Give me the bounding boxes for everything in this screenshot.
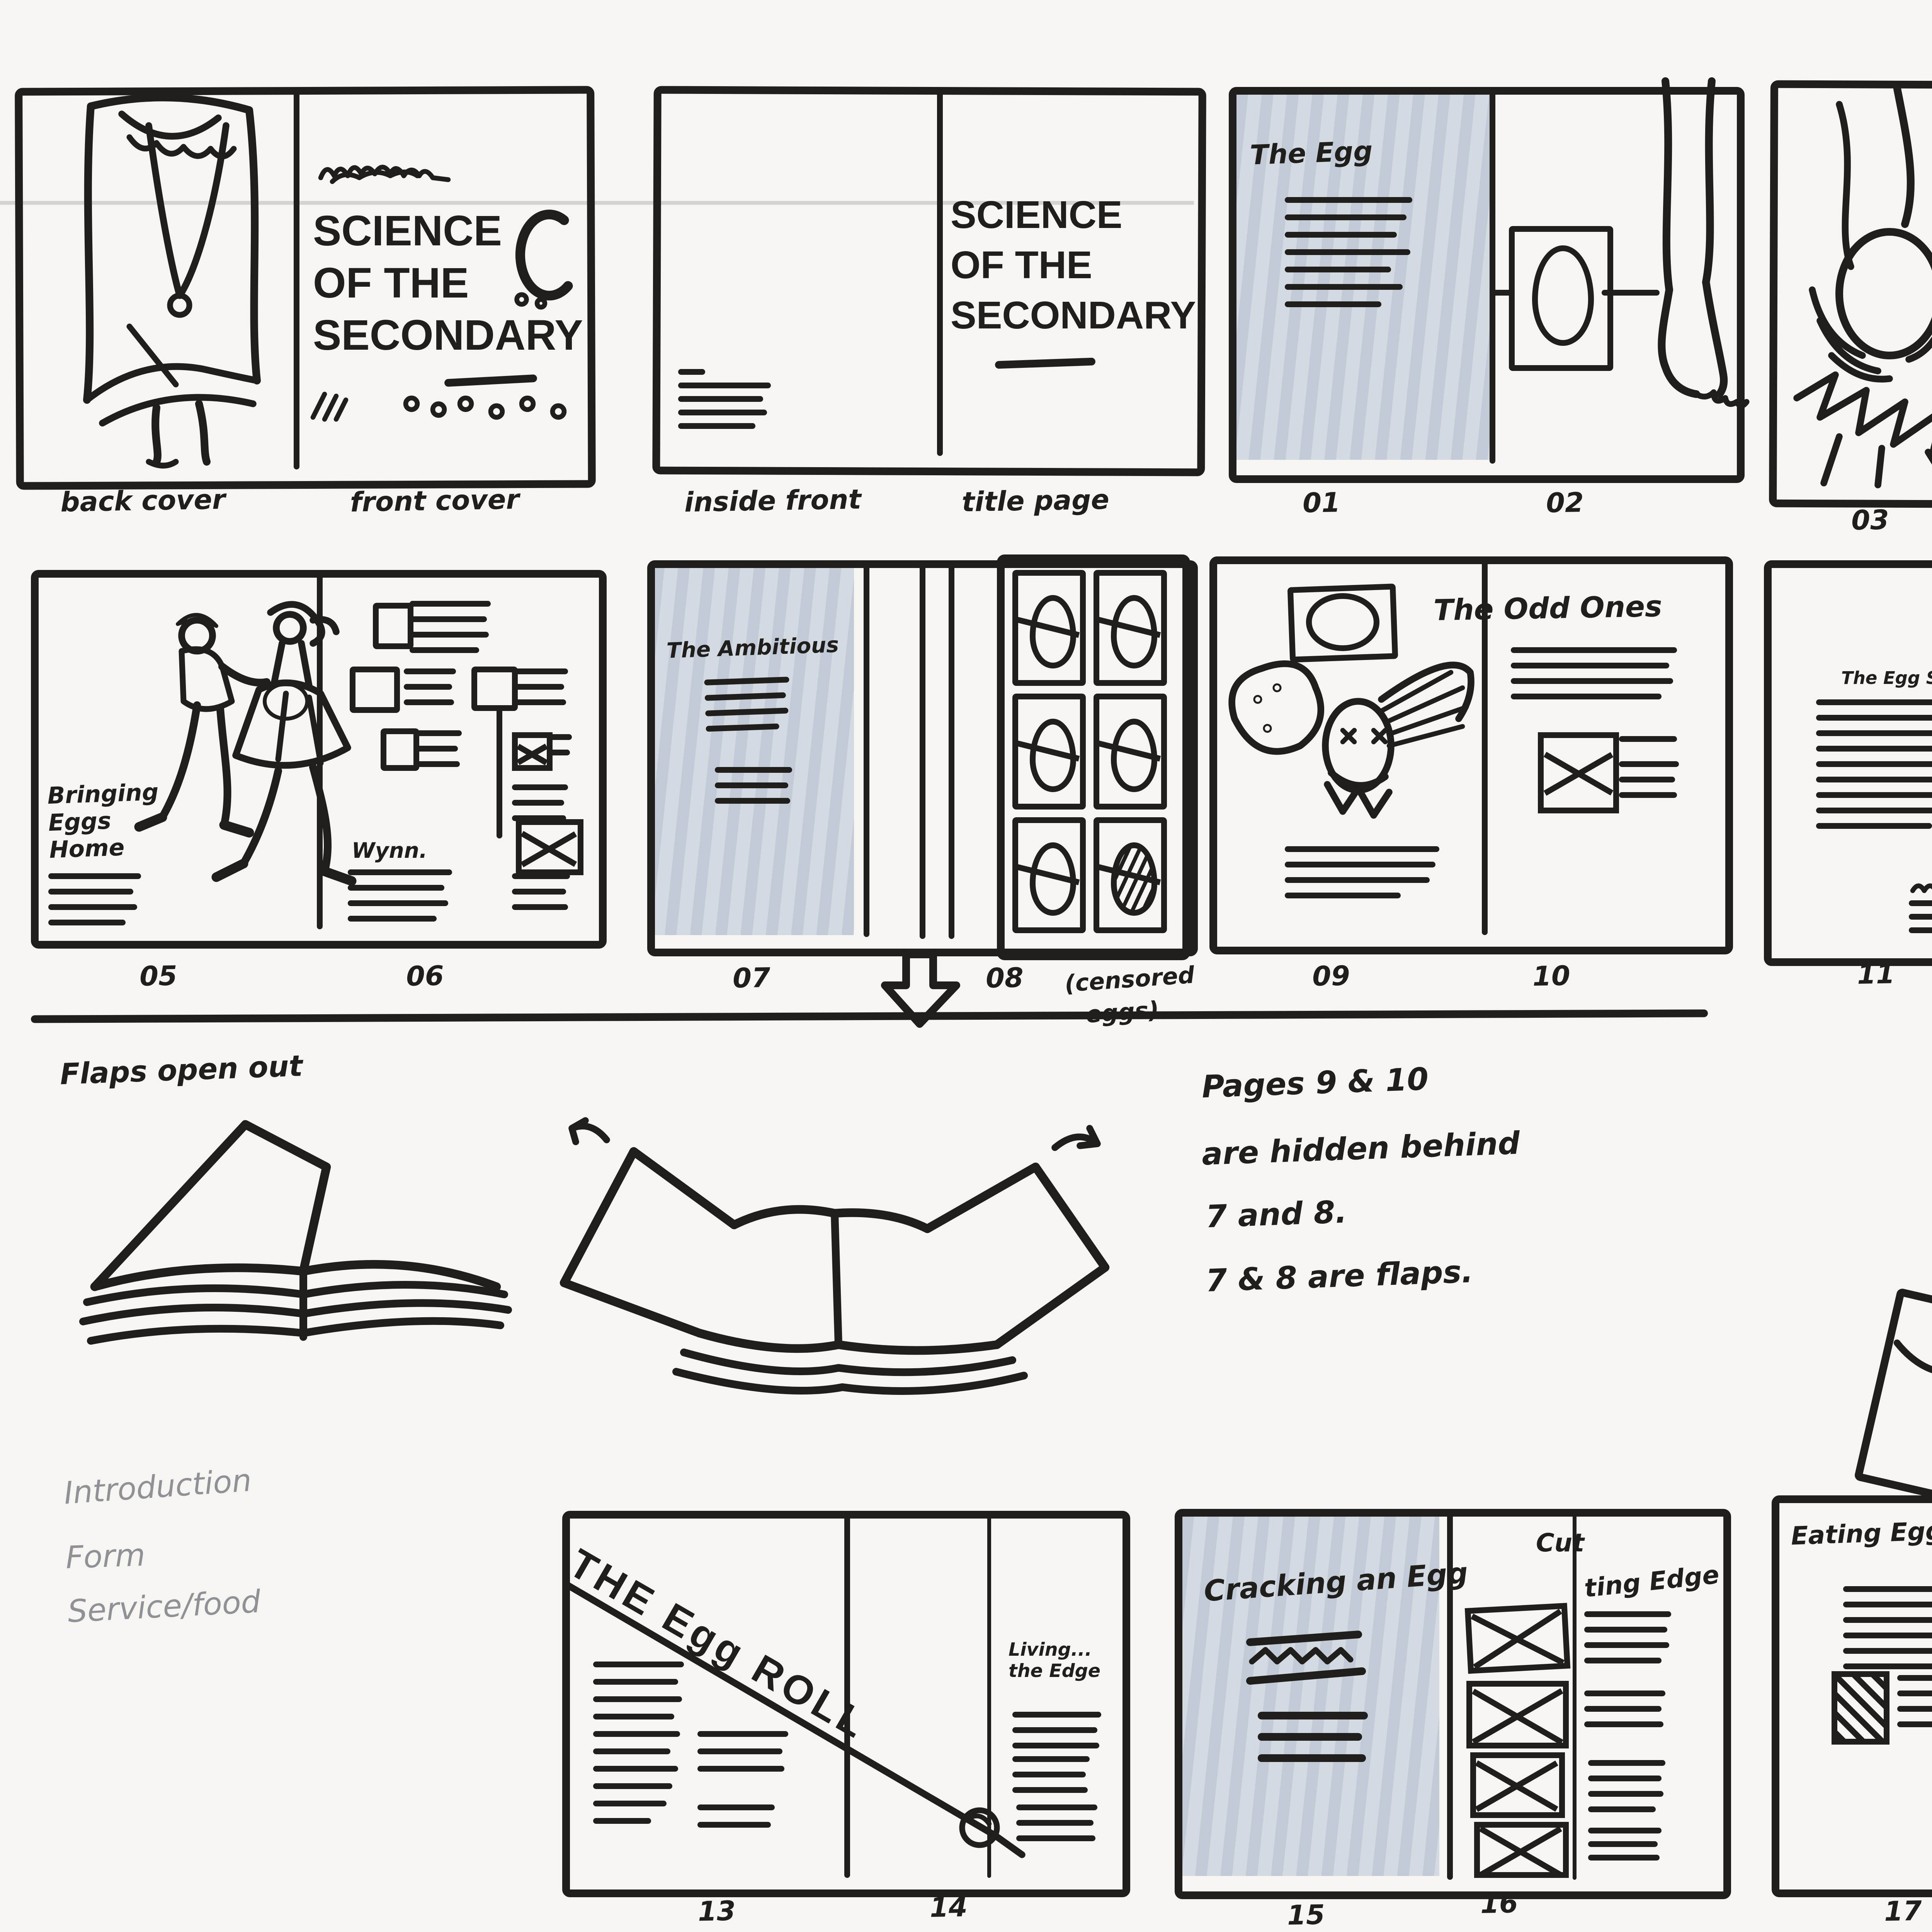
hidden-note-line1: Pages 9 & 10	[1201, 1061, 1429, 1105]
image-placeholder	[512, 732, 553, 771]
flap-07-edge	[864, 564, 869, 937]
hands-cradling-egg-sketch	[1781, 89, 1932, 487]
section-title-the-egg: The Egg	[1250, 137, 1373, 172]
censored-egg-cell-scribbled	[1094, 817, 1167, 933]
squiggle-icon	[1909, 879, 1932, 895]
label-page-02: 02	[1546, 488, 1584, 520]
image-placeholder	[1466, 1681, 1569, 1748]
text-lines-sketch	[1909, 900, 1932, 941]
spread-01-02-divider	[1490, 91, 1495, 464]
text-lines-sketch	[512, 873, 570, 920]
label-page-14: 14	[930, 1893, 968, 1925]
word-wynn: Wynn.	[352, 838, 427, 864]
text-lines-sketch	[678, 369, 771, 437]
dots-scribble-icon	[396, 381, 574, 427]
page16-fold-line	[1573, 1513, 1577, 1880]
label-page-01: 01	[1303, 488, 1341, 520]
text-lines-sketch	[1511, 647, 1677, 709]
text-lines-sketch	[415, 730, 462, 777]
layout-square	[373, 603, 413, 649]
text-lines-sketch	[1584, 1690, 1665, 1737]
image-placeholder	[1470, 1752, 1565, 1818]
text-lines-sketch	[410, 601, 491, 663]
censored-egg-cell	[1094, 570, 1167, 686]
hidden-spine-line-1	[920, 562, 925, 939]
front-cover-title-line3: SECONDARY	[313, 309, 583, 361]
text-lines-sketch	[1012, 1756, 1090, 1803]
image-placeholder	[516, 819, 583, 875]
hidden-note-line4: 7 & 8 are flaps.	[1205, 1253, 1474, 1299]
text-lines-sketch	[1897, 1675, 1932, 1737]
egg-icon	[498, 209, 583, 305]
section-title-eating: Eating Eggs	[1791, 1517, 1932, 1552]
image-placeholder	[1465, 1603, 1571, 1674]
pencil-note-line1: Introduction	[63, 1462, 253, 1512]
label-page-03: 03	[1851, 506, 1889, 537]
censored-egg-cell	[1094, 694, 1167, 810]
label-page-06: 06	[406, 962, 444, 993]
section-separator-line	[31, 1009, 1708, 1023]
text-lines-sketch	[404, 668, 456, 715]
egg-oval-icon	[1306, 593, 1379, 651]
label-title-page: title page	[961, 486, 1109, 519]
text-lines-sketch	[1012, 1712, 1101, 1758]
censored-egg-cell	[1012, 817, 1086, 933]
layout-rule	[497, 707, 502, 838]
label-page-15: 15	[1287, 1901, 1325, 1932]
storyboard-canvas: Takata Cradles Daily? SCIENCE OF THE SEC…	[0, 0, 1932, 1932]
flaps-note: Flaps open out	[60, 1049, 303, 1092]
text-lines-sketch	[1258, 1712, 1368, 1776]
hidden-note-line2: are hidden behind	[1201, 1125, 1520, 1173]
text-lines-sketch	[1588, 1828, 1662, 1868]
text-lines-sketch	[704, 677, 791, 742]
open-book-flaps-flat-sketch	[549, 1117, 1128, 1420]
open-book-flap-up-sketch	[75, 1109, 516, 1391]
text-lines-sketch	[1619, 736, 1677, 752]
censored-note-line1: (censored	[1064, 961, 1196, 997]
text-lines-sketch	[715, 767, 792, 813]
section-title-odd-ones: The Odd Ones	[1433, 589, 1662, 628]
pencil-note-line2: Form	[65, 1536, 146, 1576]
text-lines-sketch	[697, 1804, 775, 1839]
text-lines-sketch	[1584, 1611, 1671, 1673]
image-placeholder	[1538, 732, 1619, 813]
label-page-17: 17	[1884, 1897, 1922, 1929]
censored-egg-cell	[1012, 570, 1086, 686]
crack-zigzag-icon	[1246, 1629, 1370, 1687]
text-lines-sketch	[1016, 1804, 1097, 1851]
slashes-icon	[309, 390, 348, 421]
foot-sketch	[1654, 81, 1731, 415]
scribble-icon	[317, 158, 456, 185]
spread-title-divider	[937, 91, 943, 456]
label-page-13: 13	[698, 1897, 736, 1929]
text-lines-sketch	[1588, 1760, 1665, 1822]
label-page-16: 16	[1480, 1889, 1519, 1921]
text-lines-sketch	[697, 1731, 788, 1783]
section-title-cutting-part1: Cut	[1536, 1530, 1584, 1559]
hidden-spine-line-2	[949, 562, 954, 939]
text-lines-sketch	[514, 668, 568, 715]
scanned-sketch-page: Takata Cradles Daily? SCIENCE OF THE SEC…	[0, 0, 1932, 1932]
text-lines-sketch	[1285, 197, 1412, 319]
layout-square	[350, 667, 400, 713]
layout-square	[381, 728, 419, 771]
text-lines-sketch	[1816, 699, 1932, 838]
label-page-07: 07	[733, 964, 771, 995]
spread-cover-divider	[294, 91, 299, 469]
censored-egg-cell	[1012, 694, 1086, 810]
living-line1: Living...	[1009, 1640, 1100, 1662]
label-inside-front: inside front	[684, 485, 861, 519]
living-line2: the Edge	[1009, 1662, 1100, 1683]
pencil-note-line3: Service/food	[67, 1583, 262, 1630]
layout-square	[471, 667, 518, 711]
baseline-left	[1492, 290, 1515, 296]
baseline-right	[1602, 290, 1660, 296]
label-page-05: 05	[139, 962, 178, 993]
section-title-living-edge: Living... the Edge	[1009, 1640, 1100, 1683]
section-title-egg-shop: The Egg Shop	[1841, 670, 1932, 690]
title-page-title-line1: SCIENCE	[951, 191, 1196, 241]
title-page-title: SCIENCE OF THE SECONDARY	[951, 191, 1196, 342]
label-front-cover: front cover	[350, 485, 519, 519]
text-lines-sketch	[593, 1662, 684, 1835]
text-lines-sketch	[1619, 761, 1679, 808]
title-page-title-line3: SECONDARY	[951, 292, 1196, 342]
image-placeholder	[1474, 1822, 1569, 1878]
odd-egg-creature-sketch	[1219, 645, 1474, 838]
hidden-note-line3: 7 and 8.	[1205, 1194, 1347, 1235]
label-page-08: 08	[986, 964, 1024, 995]
label-page-09: 09	[1312, 962, 1350, 993]
text-lines-sketch	[549, 734, 572, 765]
label-page-10: 10	[1532, 962, 1571, 993]
title-page-title-line2: OF THE	[951, 241, 1196, 292]
label-page-11: 11	[1857, 960, 1895, 992]
text-lines-sketch	[1285, 846, 1439, 908]
label-back-cover: back cover	[60, 485, 226, 519]
text-lines-sketch	[1843, 1586, 1932, 1679]
insert-pocket-sketch	[1854, 1287, 1932, 1510]
text-lines-sketch	[348, 869, 452, 931]
pocket-opening-curve	[1882, 1297, 1932, 1418]
hatched-image-block	[1832, 1671, 1889, 1745]
woman-sketch	[64, 95, 286, 466]
